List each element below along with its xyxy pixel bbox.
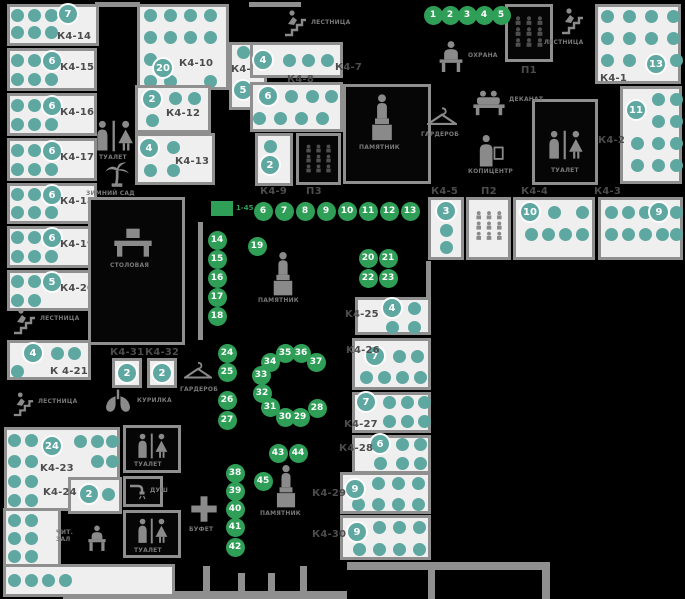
spot-badge-6: 6 [254,202,273,221]
wall-segment [347,562,549,570]
spot-badge-15: 15 [208,250,227,269]
seat-dot [204,31,217,44]
room-capacity-badge: 2 [151,362,173,384]
seat-dot [167,141,180,154]
lungs-icon [102,389,134,413]
facility-caption: ТУАЛЕТ [134,548,162,555]
room-label: К4-30 [312,529,346,540]
facility-caption: ГАРДЕРОБ [421,132,459,139]
room-capacity-badge: 11 [625,99,647,121]
seat-dot [414,438,427,451]
room-label: К4-32 [145,347,179,358]
toilet-icon [93,120,135,152]
seat-dot [670,228,683,241]
room-label: К4-14 [57,31,91,42]
spot-badge-14: 14 [208,231,227,250]
room-label: К 4-21 [50,366,88,377]
seat-dot [28,163,41,176]
statue-icon [368,92,396,142]
room-label: К4-17 [60,152,94,163]
seat-dot [11,275,24,288]
seat-dot [8,475,21,488]
facility-caption: ЛЕСТНИЦА [311,20,350,27]
room-label: К4-28 [339,443,373,454]
seat-dot [28,206,41,219]
spot-badge-18: 18 [208,307,227,326]
seat-dot [408,302,421,315]
seat-dot [25,494,38,507]
spot-badge-2: 2 [441,6,460,25]
seat-dot [28,73,41,86]
spot-badge-5: 5 [492,6,511,25]
facility-caption: ЛЕСТНИЦА [40,316,79,323]
seat-dot [670,137,683,150]
room-capacity-badge: 2 [116,362,138,384]
spot-badge-20: 20 [359,249,378,268]
seat-dot [631,137,644,150]
room-capacity-badge: 10 [519,201,541,223]
seat-dot [623,32,636,45]
room-label: П3 [306,186,322,197]
spot-badge-17: 17 [208,288,227,307]
room-capacity-badge: 3 [435,200,457,222]
room-label: К4-29 [312,488,346,499]
room-capacity-badge: 13 [645,53,667,75]
room-label: К4-2 [598,135,625,146]
seat-dot [144,164,157,177]
seat-dot [542,228,555,241]
seat-dot [45,26,58,39]
room-label: К4-9 [260,186,287,197]
room-label: К4-3 [594,186,621,197]
seat-dot [360,371,373,384]
seat-dot [372,498,385,511]
facility-caption: ЧИТ. ЗАЛ [56,530,73,544]
wall-segment [542,562,550,599]
seat-dot [576,228,589,241]
room-label: K4-24 [43,487,77,498]
wall-segment [428,570,435,599]
seat-dot [408,321,421,334]
floor-plan: 7К4-146К4-156К4-166К4-176К4-186К4-195К4-… [0,0,685,599]
seat-dot [321,54,334,67]
seat-dot [106,455,119,468]
seat-dot [74,435,87,448]
seat-dot [652,159,665,172]
seat-dot [45,73,58,86]
spot-badge-37: 37 [307,353,326,372]
seat-dot [8,455,21,468]
seat-dot [285,90,298,103]
seat-dot [396,438,409,451]
room-label: К4-31 [110,347,144,358]
seat-dot [204,9,217,22]
seat-dot [601,54,614,67]
room-capacity-badge: 4 [252,49,274,71]
seat-dot [412,498,425,511]
readingdesk-icon [86,524,108,552]
auditorium-icon [473,205,505,245]
seat-dot [652,137,665,150]
spot-badge-1: 1 [424,6,443,25]
room-capacity-badge: 2 [259,154,281,176]
legend-marker [211,201,233,216]
seat-dot [91,435,104,448]
spot-badge-40: 40 [226,500,245,519]
seat-dot [670,206,683,219]
seat-dot [237,46,250,59]
room-label: П2 [481,186,497,197]
seat-dot [645,32,658,45]
facility-caption: БУФЕТ [189,527,213,534]
spot-badge-24: 24 [218,344,237,363]
seat-dot [418,415,431,428]
room-label: К4-13 [175,156,209,167]
seat-dot [623,54,636,67]
seat-dot [392,477,405,490]
seat-dot [28,26,41,39]
seat-dot [274,112,287,125]
spot-badge-8: 8 [296,202,315,221]
stairs-icon [560,6,584,36]
room-label: K4-26 [346,345,380,356]
spot-badge-7: 7 [275,202,294,221]
seat-dot [102,488,115,501]
seat-dot [8,514,21,527]
seat-dot [8,550,21,563]
seat-dot [670,54,683,67]
room-capacity-badge: 20 [152,57,174,79]
seat-dot [412,477,425,490]
seat-dot [11,73,24,86]
room-label: К4-1 [600,73,627,84]
wall-segment [238,573,245,591]
seat-dot [401,415,414,428]
seat-dot [11,163,24,176]
seat-dot [169,92,182,105]
seat-dot [353,543,366,556]
seat-dot [25,455,38,468]
room-capacity-badge: 9 [344,478,366,500]
seat-dot [146,114,159,127]
spot-badge-4: 4 [475,6,494,25]
seat-dot [396,457,409,470]
spot-badge-3: 3 [458,6,477,25]
spot-badge-28: 28 [308,399,327,418]
seat-dot [144,31,157,44]
seat-dot [11,294,24,307]
statue-icon [272,464,300,508]
spot-badge-41: 41 [226,518,245,537]
seat-dot [8,494,21,507]
spot-badge-39: 39 [226,482,245,501]
wall-segment [426,261,431,299]
seat-dot [28,231,41,244]
room-capacity-badge: 24 [41,435,63,457]
seat-dot [11,206,24,219]
seat-dot [45,118,58,131]
seat-dot [413,543,426,556]
seat-dot [576,206,589,219]
facility-caption: КУРИЛКА [137,398,172,405]
seat-dot [68,347,81,360]
seat-dot [25,434,38,447]
seat-dot [28,144,41,157]
seat-dot [45,9,58,22]
seat-dot [25,574,38,587]
seat-dot [372,477,385,490]
seat-dot [11,54,24,67]
seat-dot [91,455,104,468]
seat-dot [393,350,406,363]
seat-dot [601,32,614,45]
spot-badge-16: 16 [208,269,227,288]
seat-dot [670,159,683,172]
seat-dot [383,396,396,409]
seat-dot [59,574,72,587]
seat-dot [11,99,24,112]
seat-dot [11,365,24,378]
seat-dot [622,206,635,219]
seat-dot [25,532,38,545]
seat-dot [184,31,197,44]
seat-dot [386,321,399,334]
seat-dot [28,188,41,201]
room-capacity-badge: 4 [381,297,403,319]
seat-dot [8,574,21,587]
seat-dot [42,574,55,587]
room-label: K4-27 [344,419,378,430]
room-capacity-badge: 4 [138,137,160,159]
seat-dot [374,457,387,470]
spot-badge-21: 21 [379,249,398,268]
seat-dot [45,250,58,263]
wall-segment [203,566,210,591]
seat-dot [25,514,38,527]
seat-dot [325,90,338,103]
spot-badge-9: 9 [317,202,336,221]
hall-stolovaya [88,197,185,345]
seat-dot [306,90,319,103]
room-label: К4-12 [166,108,200,119]
hanger-icon [184,360,212,382]
seat-dot [184,9,197,22]
facility-caption: ПАМЯТНИК [260,511,301,518]
seat-dot [8,434,21,447]
seat-dot [440,224,453,237]
wall-segment [249,2,301,7]
seat-dot [656,228,669,241]
room-capacity-badge: 7 [355,391,377,413]
seat-dot [316,112,329,125]
seat-dot [393,521,406,534]
seat-dot [396,371,409,384]
seat-dot [164,31,177,44]
seat-dot [383,415,396,428]
seat-dot [302,54,315,67]
facility-caption: ЗИМНИЙ САД [86,191,135,198]
seat-dot [11,188,24,201]
seat-dot [11,231,24,244]
spot-badge-42: 42 [226,538,245,557]
spot-badge-23: 23 [379,269,398,288]
seat-dot [605,228,618,241]
seat-dot [188,92,201,105]
deskpeople-icon [471,87,507,117]
facility-caption: КОПИЦЕНТР [468,169,513,176]
seat-dot [28,118,41,131]
wall-segment [95,2,140,7]
seat-dot [11,26,24,39]
hanger-icon [427,106,457,128]
room-capacity-badge: 6 [257,85,279,107]
seat-dot [413,521,426,534]
spot-badge-26: 26 [218,391,237,410]
seat-dot [667,10,680,23]
seat-dot [28,294,41,307]
seat-dot [106,435,119,448]
personpapers-icon [476,133,504,167]
room-label: К4-5 [431,186,458,197]
wall-segment [300,566,307,591]
auditorium-icon [512,12,546,50]
seat-dot [652,115,665,128]
spot-badge-19: 19 [248,237,267,256]
room-capacity-badge: 7 [57,3,79,25]
seat-dot [8,532,21,545]
room-label: К4-7 [335,62,362,73]
toilet-icon [133,433,171,459]
room-label: П1 [521,65,537,76]
stairs-icon [283,8,307,38]
facility-caption: ЛЕСТНИЦА [544,40,583,47]
seat-dot [164,9,177,22]
seat-dot [378,371,391,384]
spot-badge-32: 32 [253,384,272,403]
seat-dot [667,32,680,45]
legend-label: 1-45 [236,204,254,212]
seat-dot [392,498,405,511]
seat-dot [623,10,636,23]
spot-badge-45: 45 [254,472,273,491]
facility-caption: ЛЕСТНИЦА [38,399,77,406]
seat-dot [11,144,24,157]
seat-dot [652,93,665,106]
room-label: K4-25 [345,309,379,320]
seat-dot [670,115,683,128]
seat-dot [414,371,427,384]
room-capacity-badge: 9 [648,201,670,223]
seat-dot [28,275,41,288]
seat-dot [25,475,38,488]
spot-badge-11: 11 [359,202,378,221]
spot-badge-12: 12 [380,202,399,221]
seat-dot [548,206,561,219]
tablecross-icon [189,494,219,524]
seat-dot [411,350,424,363]
wall-segment [198,222,203,340]
spot-badge-13: 13 [401,202,420,221]
seat-dot [645,10,658,23]
room-capacity-badge: 2 [141,88,163,110]
seat-dot [11,118,24,131]
tap-icon [127,481,147,501]
toilet-icon [546,126,584,164]
palm-icon [100,160,134,188]
seat-dot [25,550,38,563]
auditorium-icon [303,139,334,177]
room-label: К4-16 [60,107,94,118]
spot-badge-25: 25 [218,363,237,382]
room-label: К4-4 [521,186,548,197]
seat-dot [639,228,652,241]
seat-dot [373,543,386,556]
room-label: К4-8 [287,74,314,85]
room-capacity-badge: 4 [22,342,44,364]
facility-caption: СТОЛОВАЯ [110,263,149,270]
facility-caption: ПАМЯТНИК [258,298,299,305]
facility-caption: ТУАЛЕТ [134,462,162,469]
seat-dot [253,112,266,125]
room-label: К4-15 [60,62,94,73]
desk-icon [113,226,153,258]
seat-dot [264,140,277,153]
facility-caption: ГАРДЕРОБ [180,387,218,394]
facility-caption: ТУАЛЕТ [551,168,579,175]
room-label: К4-10 [179,58,213,69]
seat-dot [295,112,308,125]
spot-badge-27: 27 [218,411,237,430]
spot-badge-43: 43 [269,444,288,463]
seat-dot [28,54,41,67]
room-capacity-badge: 9 [346,521,368,543]
facility-caption: ДУШ [150,488,168,495]
seat-dot [440,241,453,254]
seat-dot [559,228,572,241]
seat-dot [418,396,431,409]
seat-dot [393,543,406,556]
seat-dot [525,228,538,241]
facility-caption: ПАМЯТНИК [359,145,400,152]
seat-dot [144,9,157,22]
seat-dot [28,99,41,112]
spot-badge-38: 38 [226,464,245,483]
seat-dot [28,9,41,22]
seat-dot [45,206,58,219]
seat-dot [373,521,386,534]
statue-icon [269,251,297,296]
seat-dot [11,250,24,263]
spot-badge-44: 44 [289,444,308,463]
seat-dot [401,396,414,409]
seat-dot [51,347,64,360]
facility-caption: ОХРАНА [468,53,498,60]
room-capacity-badge: 2 [78,483,100,505]
stairs-icon [12,390,34,418]
spot-badge-10: 10 [338,202,357,221]
seat-dot [622,228,635,241]
facility-caption: ДЕКАНАТ [509,97,543,104]
seat-dot [601,10,614,23]
seat-dot [631,159,644,172]
toilet-icon [133,518,171,544]
seat-dot [45,163,58,176]
room-label: K4-23 [40,463,74,474]
seat-dot [283,54,296,67]
seat-dot [605,206,618,219]
persondesk-icon [437,40,465,72]
spot-badge-22: 22 [359,269,378,288]
